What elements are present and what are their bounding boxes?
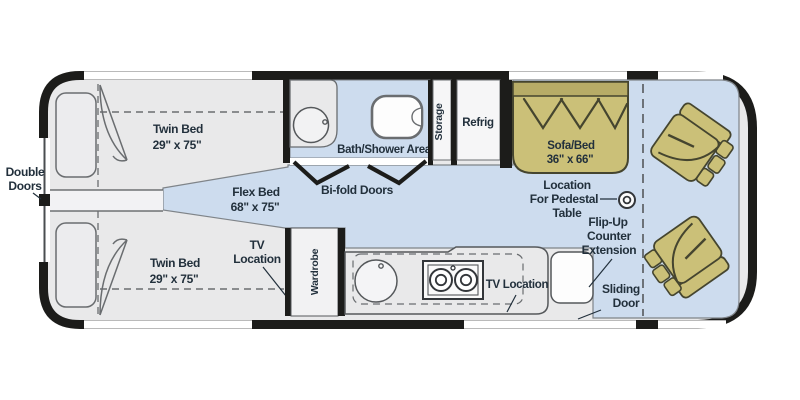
pedestal-label-line2: For Pedestal bbox=[530, 192, 598, 206]
storage-refrig: Storage Refrig bbox=[428, 80, 512, 168]
refrig-label: Refrig bbox=[462, 117, 494, 129]
refrig-wall-right bbox=[500, 80, 512, 168]
wardrobe-label: Wardrobe bbox=[309, 248, 321, 295]
sliding-door-label-line1: Sliding bbox=[602, 282, 640, 296]
window-bottom-bedroom bbox=[84, 320, 252, 328]
wardrobe-wall-left bbox=[285, 228, 291, 316]
floorplan-canvas: Twin Bed 29" x 75" Twin Bed 29" x 75" Fl… bbox=[0, 0, 800, 400]
flip-up-label-line2: Counter bbox=[587, 229, 632, 243]
twin-bed-bottom-dims: 29" x 75" bbox=[150, 272, 199, 286]
tv-location-galley-label: TV Location bbox=[486, 279, 549, 291]
tv-location-bedroom-label-line2: Location bbox=[233, 252, 281, 266]
wardrobe: Wardrobe bbox=[285, 228, 345, 316]
pedestal-label-line3: Table bbox=[553, 206, 583, 220]
rv-floorplan-drawing: Twin Bed 29" x 75" Twin Bed 29" x 75" Fl… bbox=[0, 0, 800, 400]
twin-bed-bottom-label: Twin Bed bbox=[150, 256, 200, 270]
burner-left-outer bbox=[430, 269, 452, 291]
sofa-bed-label: Sofa/Bed bbox=[547, 140, 595, 152]
window-top-sofa bbox=[509, 71, 627, 79]
bath-sink bbox=[294, 108, 329, 143]
double-doors-label-line1: Double bbox=[6, 165, 45, 179]
cooktop bbox=[423, 261, 483, 299]
flip-up-counter-extension bbox=[551, 252, 593, 303]
pillow-bottom bbox=[56, 223, 96, 307]
bath-wall-left bbox=[283, 80, 290, 163]
kitchen-sink bbox=[355, 260, 397, 302]
window-top-lounge bbox=[658, 71, 723, 79]
storage-label: Storage bbox=[433, 103, 445, 140]
flex-bed-label: Flex Bed bbox=[232, 185, 280, 199]
tv-location-bedroom-label-line1: TV bbox=[250, 238, 265, 252]
flex-bed-dims: 68" x 75" bbox=[231, 200, 280, 214]
sliding-door-opening bbox=[464, 320, 636, 328]
sliding-door-label-line2: Door bbox=[613, 296, 640, 310]
sofa-bed-dims: 36" x 66" bbox=[547, 154, 594, 166]
wardrobe-wall-right bbox=[338, 228, 345, 316]
bifold-doors-label: Bi-fold Doors bbox=[321, 183, 394, 197]
sofa-back-band bbox=[513, 82, 628, 96]
flip-up-label-line3: Extension bbox=[582, 243, 637, 257]
double-doors-marker bbox=[39, 194, 50, 206]
double-doors-label-line2: Doors bbox=[8, 179, 42, 193]
storage-wall-right bbox=[451, 80, 457, 165]
bath-shower-label: Bath/Shower Area bbox=[337, 144, 432, 156]
bath-threshold bbox=[290, 158, 430, 165]
window-bottom-lounge bbox=[658, 320, 726, 328]
pillow-top bbox=[56, 93, 96, 177]
twin-bed-top-label: Twin Bed bbox=[153, 122, 203, 136]
sofa-bed: Sofa/Bed 36" x 66" bbox=[513, 82, 628, 173]
pedestal-mount-outer bbox=[619, 192, 635, 208]
pedestal-label-line1: Location bbox=[543, 178, 591, 192]
window-top-bedroom bbox=[84, 71, 252, 79]
twin-bed-top-dims: 29" x 75" bbox=[153, 138, 202, 152]
flip-up-label-line1: Flip-Up bbox=[588, 215, 627, 229]
burner-right-outer bbox=[455, 269, 477, 291]
between-beds-platform bbox=[50, 190, 163, 211]
